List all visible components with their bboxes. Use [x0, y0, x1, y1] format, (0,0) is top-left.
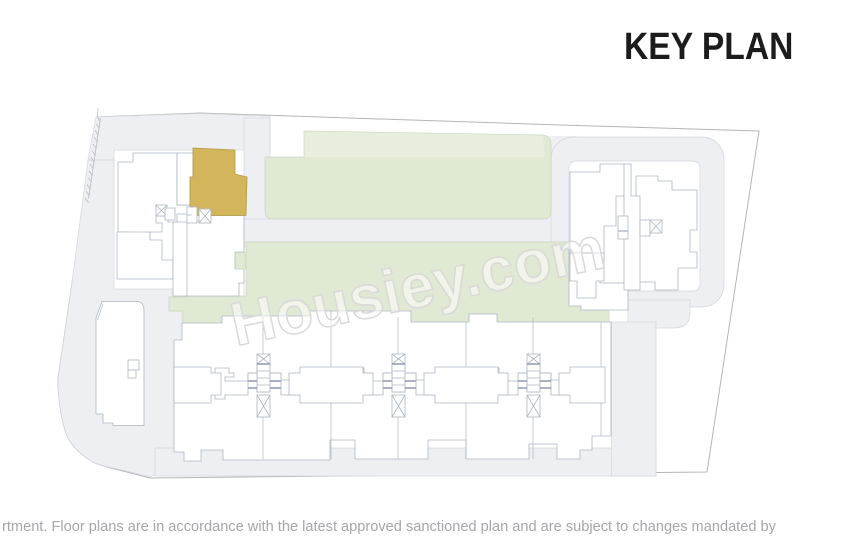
svg-text:KEY PLAN: KEY PLAN — [624, 25, 793, 67]
svg-text:rtment. Floor plans are in acc: rtment. Floor plans are in accordance wi… — [2, 519, 777, 535]
